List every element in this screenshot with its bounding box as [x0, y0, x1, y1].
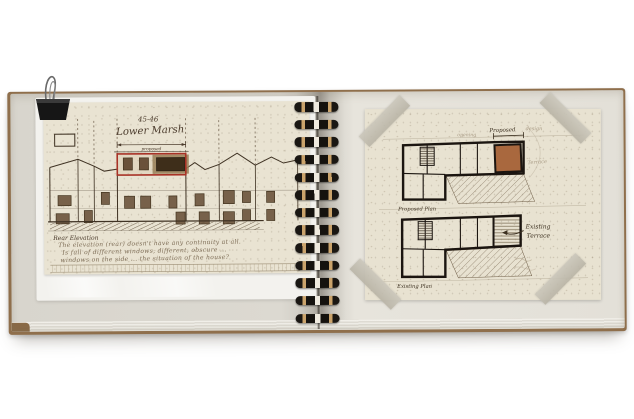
proposed-plan-caption: Proposed Plan [397, 207, 436, 213]
elevation-drawing: 45-46 Lower Marsh proposed Rear Elevatio… [43, 101, 310, 275]
cover-corner-edge [12, 323, 30, 332]
spiral-loop [296, 313, 340, 323]
existing-annotation-1: Existing [525, 224, 551, 231]
spiral-loop [295, 172, 339, 182]
binder-clip-icon [31, 70, 75, 122]
plastic-sleeve: 45-46 Lower Marsh proposed Rear Elevatio… [35, 96, 316, 301]
construction-arc [528, 127, 541, 177]
sheet-title: Lower Marsh [115, 124, 184, 138]
spiral-loop [295, 278, 339, 288]
existing-annotation-2: Terrace [527, 233, 551, 240]
spiral-loop [295, 155, 339, 165]
spiral-loop [295, 208, 339, 218]
proposed-label-top: Proposed [488, 127, 516, 134]
stair-core-bottom [418, 222, 432, 240]
elevation-sheet: 45-46 Lower Marsh proposed Rear Elevatio… [43, 101, 310, 275]
spiral-loop [296, 296, 340, 306]
yard-hatch-top [446, 174, 534, 203]
proposed-plan: Proposed design opening Terrace Proposed… [397, 126, 547, 212]
ground-hatch [50, 222, 260, 231]
elevation-facade [50, 133, 298, 222]
spiral-binding [293, 102, 340, 323]
large-proposed-window [157, 158, 185, 171]
proposed-label-faint: design [526, 126, 543, 132]
spiral-loop [294, 102, 338, 112]
spiral-loop [294, 119, 338, 129]
stair-core-top [420, 147, 434, 165]
spiral-loop [295, 260, 339, 270]
spiral-loop [295, 190, 339, 200]
spiral-loop [295, 225, 339, 235]
elevation-windows [56, 190, 275, 225]
handwritten-note: The elevation (rear) doesn't have any co… [58, 238, 241, 264]
binder-clip [31, 70, 75, 122]
opening-note-faint: opening [457, 132, 476, 138]
photo-scene: 45-46 Lower Marsh proposed Rear Elevatio… [0, 0, 634, 419]
sheet-title-number: 45-46 [137, 114, 159, 123]
yard-hatch-bottom [446, 247, 531, 278]
spiral-loop [295, 243, 339, 253]
proposed-label: proposed [141, 146, 161, 151]
existing-plan-caption: Existing Plan [396, 284, 432, 290]
terrace-note-faint: Terrace [527, 159, 547, 166]
proposed-room [494, 144, 521, 172]
sketchbook: 45-46 Lower Marsh proposed Rear Elevatio… [7, 88, 626, 335]
open-pages: 45-46 Lower Marsh proposed Rear Elevatio… [10, 90, 624, 332]
spiral-loop [295, 137, 339, 147]
